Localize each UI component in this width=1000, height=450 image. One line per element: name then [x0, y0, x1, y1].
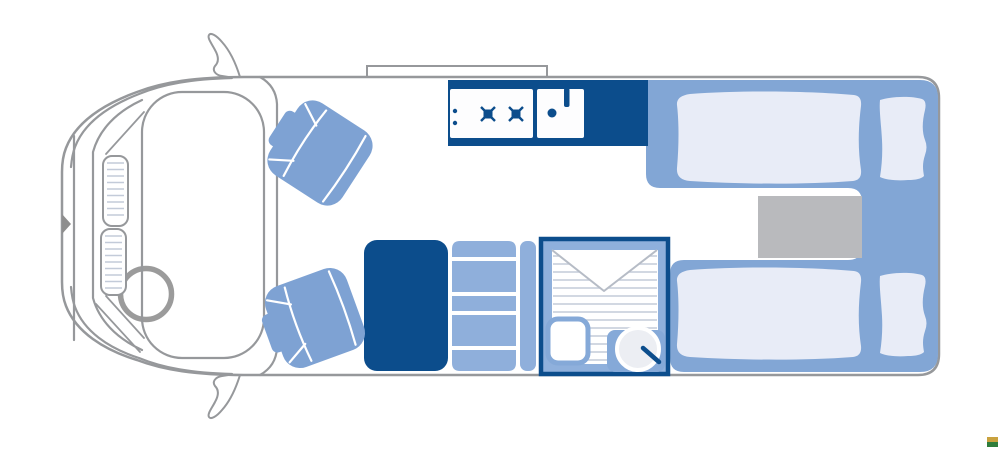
dashboard-vent-upper [103, 156, 128, 226]
duvet-bottom [677, 267, 861, 359]
sink-drain [548, 109, 557, 118]
hob-knob-2 [453, 121, 457, 125]
washbasin [617, 328, 659, 370]
side-panel [520, 241, 536, 371]
floorplan-canvas [0, 0, 1000, 450]
corner-watermark [987, 437, 998, 447]
hob-knob-1 [453, 109, 457, 113]
wardrobe [364, 240, 448, 371]
pillow-top [880, 97, 927, 181]
pillow-bottom [880, 273, 927, 357]
sink-panel [537, 89, 584, 138]
faucet [564, 88, 570, 107]
side-mirror-left [209, 34, 240, 77]
bathroom [541, 239, 668, 374]
side-mirror-right [209, 375, 240, 418]
duvet-top [677, 91, 861, 183]
toilet [548, 319, 588, 363]
kitchen-unit [448, 80, 648, 146]
step-between-beds [758, 196, 862, 258]
dashboard-vent-lower [101, 229, 126, 295]
motorhome-floorplan [0, 0, 1000, 450]
